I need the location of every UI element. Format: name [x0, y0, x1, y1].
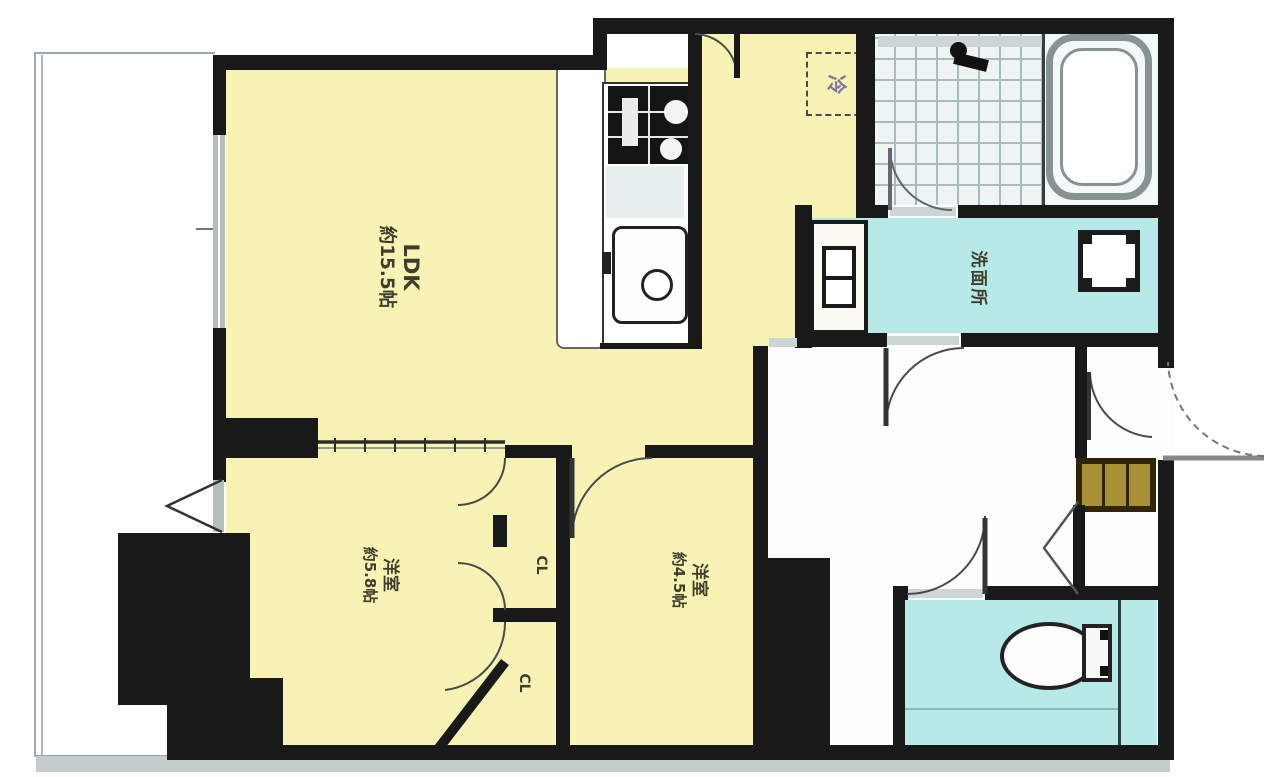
floor-plan: 冷 [0, 0, 1280, 777]
shoe-cabinet-icon [1076, 458, 1156, 512]
balcony-inner-line [41, 55, 43, 755]
vanity-sink-icon [810, 220, 868, 334]
wall-bedroom2-top-b [645, 445, 768, 458]
wall-washroom-hall-b [961, 333, 1160, 347]
ldk-window [213, 135, 225, 328]
kitchen-island-counter [556, 60, 606, 349]
wall-washroom-left [795, 205, 812, 348]
pillar-bottom-left-b [167, 678, 283, 760]
toilet-floor-line [905, 708, 1118, 710]
pillar-bottom-center [753, 558, 830, 757]
wall-kitchen-bottom [600, 343, 702, 349]
wall-closet-divider [493, 608, 570, 622]
closet-lower-label: CL [514, 668, 532, 698]
closet-lower-name: CL [515, 668, 532, 698]
wall-ldk-top [213, 55, 607, 70]
kitchen-sink-icon [612, 226, 688, 324]
washroom-door-threshold [887, 336, 959, 345]
bath-tub-divider [1042, 34, 1045, 205]
hall-lower-floor [830, 586, 893, 748]
toilet-tank-icon [1082, 624, 1112, 682]
ldk-size: 約15.5帖 [375, 192, 398, 342]
wall-washroom-hall-a [795, 333, 887, 347]
wall-entrance-divider-a [1075, 333, 1087, 458]
sink-tab [602, 252, 611, 274]
shower-head-icon [944, 42, 992, 76]
closet-upper-name: CL [532, 550, 549, 580]
wall-toilet-left [893, 586, 905, 748]
bedroom-second-size: 約4.5帖 [670, 520, 688, 640]
entry-opening-floor [1158, 368, 1174, 460]
kitchen-counter-gap [606, 166, 684, 218]
bathtub-icon [1046, 34, 1152, 200]
dk-corridor-lower-floor [700, 215, 797, 348]
wall-left-upper [213, 55, 226, 135]
bath-door-threshold [890, 207, 956, 216]
wall-closet-stub [493, 515, 507, 547]
wall-right-lower [1158, 460, 1174, 760]
wall-closet-right [556, 445, 570, 747]
hall-opening-threshold [769, 338, 797, 347]
washroom-name: 洗面所 [967, 239, 988, 319]
bedroom-main-label: 洋室 約5.8帖 [348, 520, 400, 630]
wall-entrance-divider-b [1073, 505, 1085, 590]
bedroom-second-name: 洋室 [688, 520, 709, 640]
ldk-label: LDK 約15.5帖 [361, 192, 423, 342]
toilet-pipe-divider [1118, 600, 1121, 748]
washing-machine-pan-icon [1078, 230, 1140, 292]
bedroom-main-name: 洋室 [379, 520, 400, 630]
pillar-ldk-bedroom [213, 418, 318, 458]
wall-right-upper [1158, 18, 1174, 368]
wall-bottom [280, 745, 1172, 760]
wall-left-mid [213, 328, 226, 420]
ldk-name: LDK [397, 192, 423, 342]
bedroom-second-label: 洋室 約4.5帖 [657, 520, 709, 640]
wall-bath-washroom-a [856, 205, 888, 218]
toilet-door-threshold [908, 589, 983, 598]
wall-bath-left [856, 18, 875, 218]
wall-kitchen-front [688, 34, 702, 345]
wall-bath-washroom-b [958, 205, 1160, 218]
washroom-label: 洗面所 [964, 239, 988, 319]
stove-icon [608, 86, 688, 164]
wall-top [595, 18, 1174, 34]
refrigerator-label: 冷 [824, 74, 853, 94]
bedroom-window [213, 480, 224, 532]
wall-left-bedroom-top [213, 456, 226, 482]
closet-upper-label: CL [531, 550, 549, 580]
bedroom-main-size: 約5.8帖 [361, 520, 379, 630]
